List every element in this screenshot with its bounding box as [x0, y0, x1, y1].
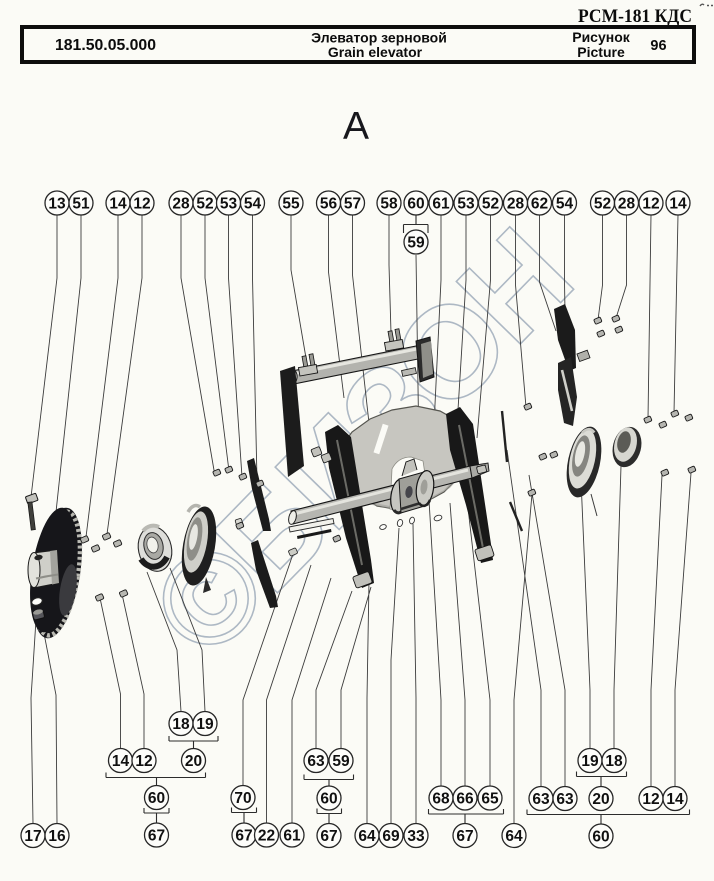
svg-text:70: 70 [234, 790, 251, 807]
svg-text:16: 16 [48, 828, 66, 845]
svg-text:22: 22 [258, 828, 275, 845]
svg-text:51: 51 [72, 196, 90, 213]
svg-text:60: 60 [592, 829, 609, 846]
svg-text:28: 28 [507, 196, 525, 213]
svg-text:67: 67 [320, 828, 337, 845]
svg-text:18: 18 [172, 716, 190, 733]
svg-text:Рисунок: Рисунок [572, 29, 631, 45]
svg-text:РСМ-181 КДС: РСМ-181 КДС [578, 6, 692, 27]
svg-text:20: 20 [592, 791, 609, 808]
svg-text:65: 65 [481, 791, 499, 808]
svg-text:18: 18 [605, 753, 623, 770]
svg-text:52: 52 [196, 196, 213, 213]
svg-text:12: 12 [135, 753, 152, 770]
svg-text:55: 55 [282, 196, 300, 213]
svg-text:54: 54 [556, 196, 574, 213]
svg-text:67: 67 [235, 828, 252, 845]
svg-text:13: 13 [48, 196, 66, 213]
svg-text:20: 20 [185, 753, 202, 770]
svg-text:67: 67 [148, 828, 165, 845]
svg-text:181.50.05.000: 181.50.05.000 [55, 37, 156, 54]
svg-text:60: 60 [320, 791, 337, 808]
svg-text:63: 63 [532, 791, 550, 808]
svg-text:52: 52 [482, 196, 499, 213]
svg-text:28: 28 [172, 196, 190, 213]
svg-text:63: 63 [307, 753, 325, 770]
svg-text:19: 19 [581, 753, 599, 770]
svg-text:56: 56 [320, 196, 338, 213]
svg-text:57: 57 [344, 196, 361, 213]
svg-text:17: 17 [24, 828, 41, 845]
svg-text:64: 64 [358, 828, 376, 845]
svg-text:54: 54 [244, 196, 262, 213]
svg-text:12: 12 [642, 791, 659, 808]
svg-text:52: 52 [594, 196, 611, 213]
svg-text:28: 28 [618, 196, 636, 213]
svg-text:14: 14 [112, 753, 130, 770]
svg-text:66: 66 [456, 791, 474, 808]
svg-text:61: 61 [432, 196, 450, 213]
svg-text:58: 58 [380, 196, 398, 213]
svg-text:67: 67 [456, 828, 473, 845]
svg-text:60: 60 [148, 790, 165, 807]
svg-text:19: 19 [196, 716, 214, 733]
svg-text:69: 69 [382, 828, 400, 845]
svg-text:62: 62 [531, 196, 548, 213]
svg-text:53: 53 [457, 196, 475, 213]
svg-text:Picture: Picture [577, 44, 625, 60]
svg-text:12: 12 [133, 196, 150, 213]
svg-text:14: 14 [669, 196, 687, 213]
svg-text:14: 14 [109, 196, 127, 213]
svg-text:96: 96 [650, 38, 666, 54]
svg-text:Grain elevator: Grain elevator [328, 44, 423, 60]
svg-text:12: 12 [642, 196, 659, 213]
svg-text:63: 63 [556, 791, 574, 808]
svg-text:61: 61 [283, 828, 301, 845]
svg-text:A: A [343, 105, 369, 148]
svg-text:68: 68 [432, 791, 450, 808]
svg-text:60: 60 [407, 196, 424, 213]
svg-text:59: 59 [332, 753, 350, 770]
svg-text:64: 64 [505, 828, 523, 845]
svg-text:59: 59 [407, 235, 425, 252]
svg-text:33: 33 [407, 828, 425, 845]
svg-text:53: 53 [220, 196, 238, 213]
svg-text:14: 14 [666, 791, 684, 808]
